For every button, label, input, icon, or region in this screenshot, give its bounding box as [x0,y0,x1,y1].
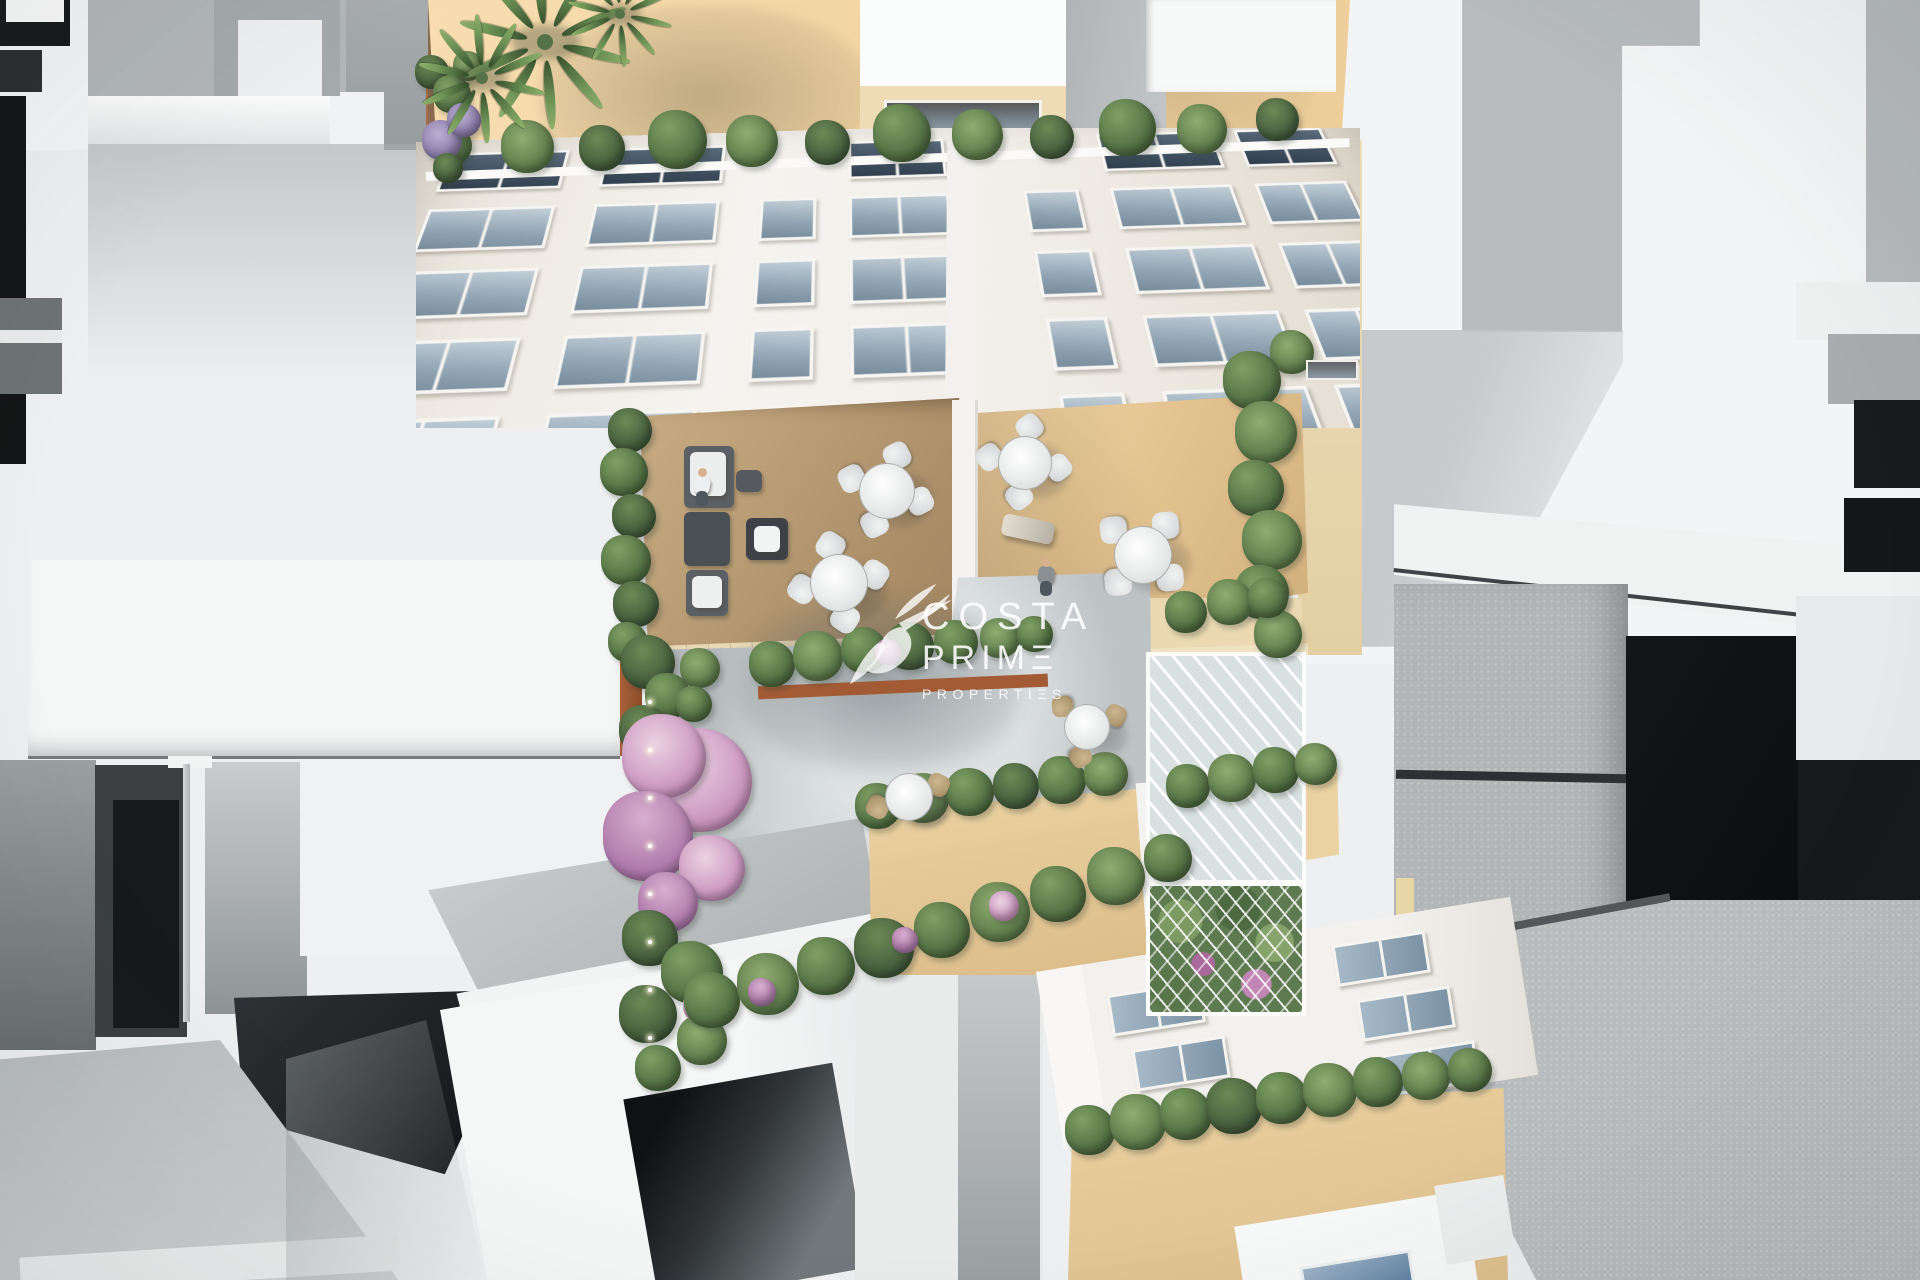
hedge-bush [914,902,970,958]
hedge-bush [1353,1057,1403,1107]
hedge-bush [805,120,850,165]
fairy-light [648,844,652,848]
hedge-bush [680,648,720,688]
hedge-bush [579,125,625,171]
hedge-bush [1256,1072,1308,1124]
hedge-bush [1295,743,1337,785]
ottoman [684,512,730,566]
palm-frond [625,21,657,57]
fairy-light [648,700,652,704]
hedge-bush [619,985,677,1043]
hedge-bush [1208,754,1256,802]
hedge-bush [749,641,795,687]
hedge-bush [676,686,712,722]
watermark-text: COSTA PRIMΞ PROPERTIΞS [922,598,1095,702]
fairy-light [648,796,652,800]
hedge-bush [433,153,463,183]
hedge-bush [873,104,931,162]
hedge-bush [1177,104,1227,154]
hedge-bush [1110,1094,1166,1150]
flower-bush [892,927,918,953]
flower-bush [622,714,706,798]
palm-frond [532,0,548,25]
hedge-bush [1099,99,1156,156]
palm-frond [630,14,672,30]
coffee-table-top [754,526,780,552]
flower-bush [989,891,1019,921]
palm-frond [541,60,557,130]
hedge-bush [1030,866,1086,922]
hedge-bush [1087,847,1145,905]
hedge-bush [1228,460,1284,516]
sun-lounger [1000,513,1055,545]
watermark-line-1: COSTA [922,598,1095,638]
hedge-bush [1144,834,1192,882]
wing-window-slot [1306,360,1358,380]
fairy-light [648,940,652,944]
hedge-bush [1207,579,1253,625]
architectural-render-scene: COSTA PRIMΞ PROPERTIΞS [0,0,1920,1280]
hedge-bush [726,115,778,167]
hedge-bush [1256,98,1299,141]
fairy-light [648,988,652,992]
palm-frond [553,53,606,112]
fairy-light [648,892,652,896]
palm-crown [476,72,488,84]
pouf [736,470,762,492]
flower-bush [748,978,776,1006]
palm-frond [567,0,609,15]
hedge-bush [600,448,648,496]
person-head [1042,558,1051,567]
hedge-bush [635,1045,681,1091]
hedge-bush [1235,401,1297,463]
hedge-bush [684,972,740,1028]
palm-crown [537,34,553,50]
hedge-bush [612,494,656,538]
hedge-bush [1242,510,1302,570]
hedge-bush [1448,1048,1492,1092]
fairy-light [648,1036,652,1040]
hedge-bush [797,937,855,995]
watermark-line-2: PRIMΞ [922,640,1095,677]
hedge-bush [1206,1078,1262,1134]
hedge-bush [793,631,843,681]
hedge-bush [648,110,707,169]
palm-frond [479,92,491,143]
hedge-bush [501,120,554,173]
palm-crown [615,9,625,19]
hedge-bush [1223,351,1281,409]
hedge-bush [993,763,1039,809]
hedge-bush [952,109,1003,160]
hedge-bush [1303,1063,1357,1117]
hedge-bush [1030,115,1074,159]
hedge-bush [608,408,652,452]
person-legs [696,491,708,506]
sofa-2-cushion [692,576,722,608]
watermark-line-3: PROPERTIΞS [922,686,1095,702]
hedge-bush [1248,578,1288,618]
table-top [998,436,1052,490]
hedge-bush [601,535,651,585]
fairy-light [648,748,652,752]
hedge-bush [1253,747,1299,793]
table-top [885,773,933,821]
hedge-bush [946,768,994,816]
watermark: COSTA PRIMΞ PROPERTIΞS [842,578,1202,728]
table-top [1114,526,1172,584]
hedge-bush [1065,1105,1115,1155]
hedge-bush [613,581,659,627]
table-top [859,463,915,519]
hedge-bush [1166,764,1210,808]
hedge-bush [1160,1088,1212,1140]
hedge-bush [1402,1052,1450,1100]
person-head [698,468,707,477]
